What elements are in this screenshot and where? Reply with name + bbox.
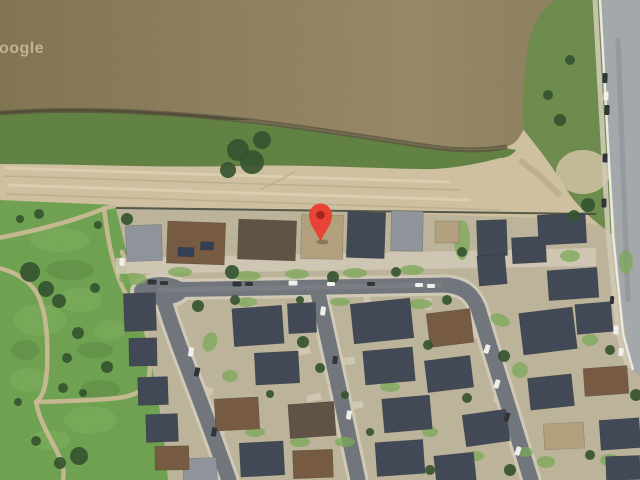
satellite-map-canvas[interactable]: Google — [0, 0, 640, 480]
watermark-logo: Google — [0, 40, 44, 57]
pin-inner-dot-icon — [316, 211, 325, 220]
pin-shadow — [317, 240, 329, 245]
map-viewport[interactable]: Google — [0, 0, 640, 480]
